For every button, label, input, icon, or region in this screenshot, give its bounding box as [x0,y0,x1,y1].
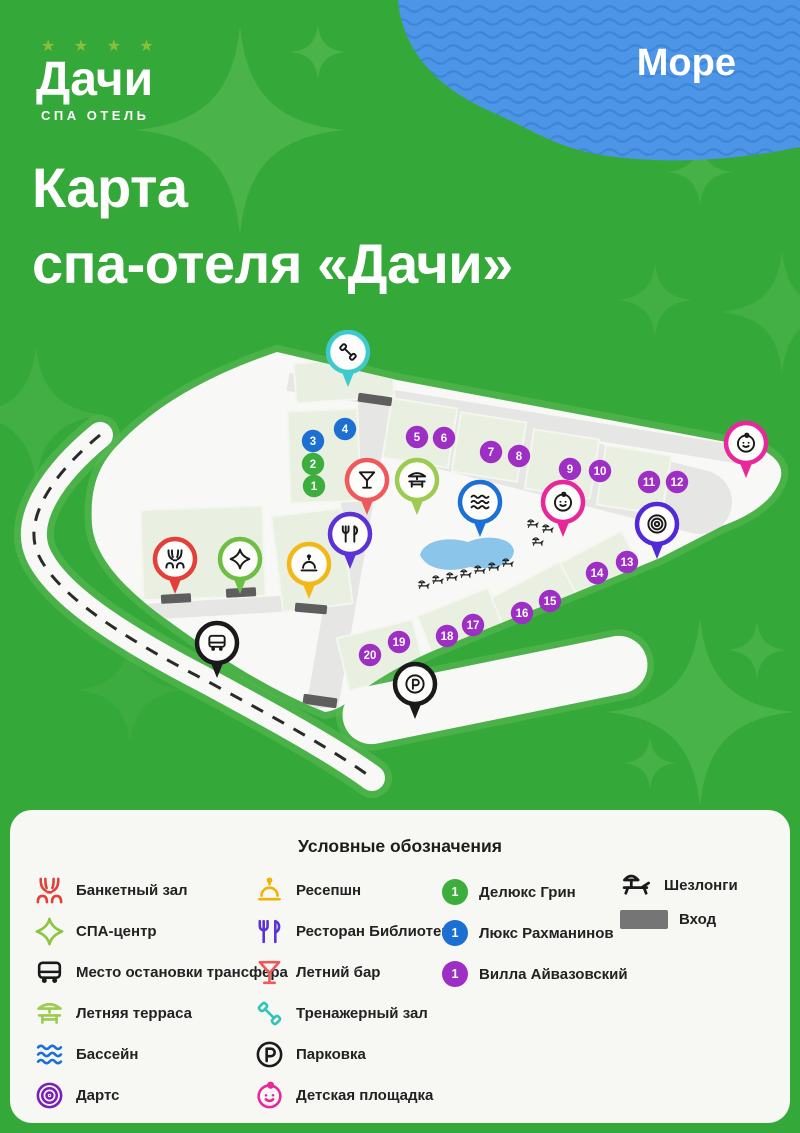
legend-item: Дартс [34,1079,288,1111]
legend-item: Летний бар [254,956,457,988]
svg-text:18: 18 [441,631,454,643]
svg-text:6: 6 [441,433,447,445]
room-badge: 1 [442,961,468,987]
room-marker-11: 11 [638,471,660,493]
room-marker-19: 19 [388,631,410,653]
svg-text:13: 13 [621,557,634,569]
legend-label: Люкс Рахманинов [479,925,614,942]
svg-text:9: 9 [567,464,573,476]
logo-tagline: СПА ОТЕЛЬ [41,108,161,123]
legend-item: Детская площадка [254,1079,457,1111]
svg-text:8: 8 [516,451,523,463]
legend-label: СПА-центр [76,923,157,940]
svg-text:19: 19 [393,637,406,649]
svg-text:1: 1 [311,481,318,493]
legend-label: Тренажерный зал [296,1005,428,1022]
bell-icon [254,875,285,906]
legend-column-1: Банкетный залСПА-центрМесто остановки тр… [34,874,288,1120]
legend-label: Дартс [76,1087,119,1104]
pool [420,538,514,570]
legend-label: Банкетный зал [76,882,188,899]
terrace-icon [34,998,65,1029]
room-badge: 1 [442,879,468,905]
room-marker-10: 10 [589,460,611,482]
room-marker-13: 13 [616,551,638,573]
legend-item: Шезлонги [620,871,738,899]
svg-text:5: 5 [414,432,421,444]
room-marker-15: 15 [539,590,561,612]
room-marker-4: 4 [334,418,356,440]
room-marker-14: 14 [586,562,608,584]
legend-item: Летняя терраса [34,997,288,1029]
banquet-icon [34,875,65,906]
svg-text:3: 3 [310,436,316,448]
svg-text:12: 12 [671,477,684,489]
legend-label: Бассейн [76,1046,138,1063]
legend-title: Условные обозначения [10,836,790,857]
spa-icon [34,916,65,947]
svg-text:2: 2 [310,459,316,471]
pool-icon [34,1039,65,1070]
legend-label: Детская площадка [296,1087,433,1104]
room-marker-20: 20 [359,644,381,666]
legend-label: Ресторан Библиотека [296,923,457,940]
bar-icon [254,957,285,988]
legend-item: Тренажерный зал [254,997,457,1029]
darts-icon [34,1080,65,1111]
legend-item: 1Люкс Рахманинов [442,917,628,949]
legend-item: СПА-центр [34,915,288,947]
hotel-map: 1234567891011121314151617181920 [0,330,800,820]
room-marker-9: 9 [559,458,581,480]
legend-label: Ресепшн [296,882,361,899]
legend-item: Парковка [254,1038,457,1070]
room-marker-12: 12 [666,471,688,493]
legend-label: Вилла Айвазовский [479,966,628,983]
svg-text:10: 10 [594,466,607,478]
legend-item: Бассейн [34,1038,288,1070]
room-marker-16: 16 [511,602,533,624]
page-title: Карта спа-отеля «Дачи» [32,150,513,301]
title-line1: Карта [32,156,188,219]
svg-text:17: 17 [467,620,480,632]
legend-item: 1Делюкс Грин [442,876,628,908]
title-line2: спа-отеля «Дачи» [32,232,513,295]
legend-column-4: ШезлонгиВход [620,871,738,939]
svg-text:15: 15 [544,596,557,608]
entrance-icon [620,910,668,929]
legend-label: Летняя терраса [76,1005,192,1022]
restaurant-icon [254,916,285,947]
legend-label: Делюкс Грин [479,884,576,901]
room-badge: 1 [442,920,468,946]
legend-label: Вход [679,911,716,928]
svg-text:16: 16 [516,608,529,620]
svg-text:20: 20 [364,650,377,662]
room-marker-3: 3 [302,430,324,452]
logo-name: Дачи [36,56,161,105]
hotel-logo: ★ ★ ★ ★ Дачи СПА ОТЕЛЬ [36,36,161,123]
legend-item: Ресторан Библиотека [254,915,457,947]
lounger-icon [620,869,653,902]
legend-item: Ресепшн [254,874,457,906]
sea-shape [395,0,800,170]
legend-item: Место остановки трансфера [34,956,288,988]
legend-column-3: 1Делюкс Грин1Люкс Рахманинов1Вилла Айваз… [442,876,628,999]
svg-text:4: 4 [342,424,349,436]
svg-text:11: 11 [643,477,656,489]
room-marker-6: 6 [433,427,455,449]
svg-text:14: 14 [591,568,604,580]
legend-panel: Условные обозначения Банкетный залСПА-це… [10,810,790,1123]
legend-label: Парковка [296,1046,366,1063]
room-marker-18: 18 [436,625,458,647]
legend-item: Банкетный зал [34,874,288,906]
sea-label: Море [637,42,736,85]
legend-label: Шезлонги [664,877,738,894]
darts-icon [648,515,665,532]
parking-icon [254,1039,285,1070]
room-marker-8: 8 [508,445,530,467]
gym-icon [254,998,285,1029]
legend-item: 1Вилла Айвазовский [442,958,628,990]
bus-icon [34,957,65,988]
legend-column-2: РесепшнРесторан БиблиотекаЛетний барТрен… [254,874,457,1120]
room-marker-5: 5 [406,426,428,448]
room-marker-2: 2 [302,453,324,475]
svg-text:7: 7 [488,447,494,459]
room-marker-7: 7 [480,441,502,463]
kids-icon [254,1080,285,1111]
room-marker-1: 1 [303,475,325,497]
room-marker-17: 17 [462,614,484,636]
legend-item: Вход [620,905,738,933]
legend-label: Летний бар [296,964,380,981]
